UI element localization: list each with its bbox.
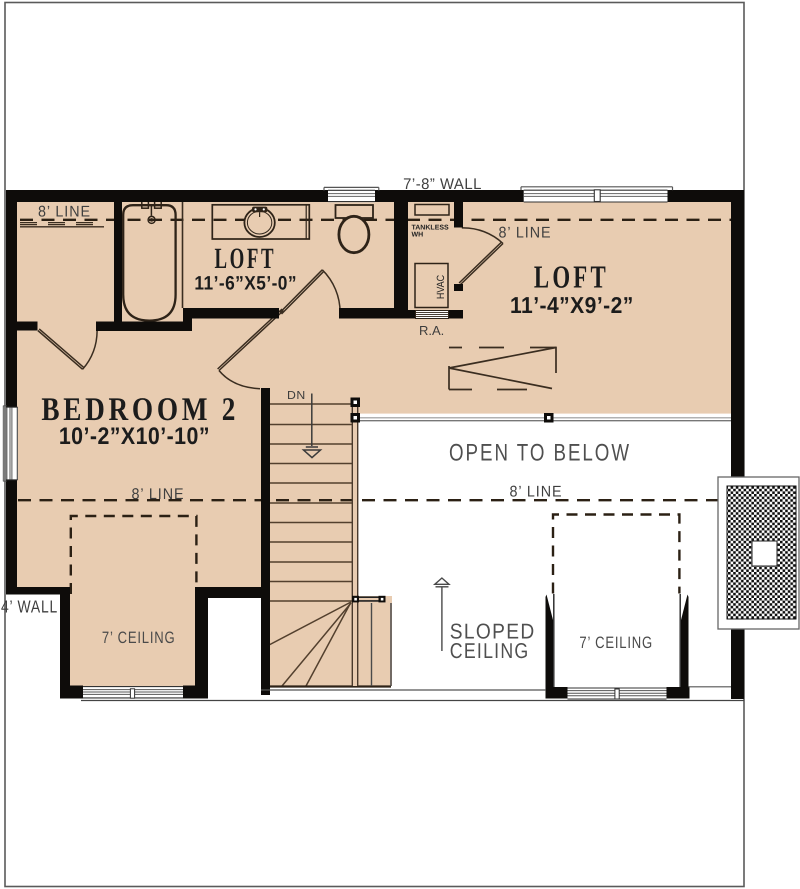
svg-text:10’-2”X10’-10”: 10’-2”X10’-10” bbox=[59, 423, 210, 450]
svg-text:11’-4”X9’-2”: 11’-4”X9’-2” bbox=[510, 292, 634, 318]
svg-text:7’-8” WALL: 7’-8” WALL bbox=[403, 176, 482, 193]
svg-text:8’ LINE: 8’ LINE bbox=[510, 484, 563, 501]
svg-text:7’ CEILING: 7’ CEILING bbox=[102, 629, 176, 647]
svg-text:7’ CEILING: 7’ CEILING bbox=[579, 634, 653, 652]
svg-text:LOFT: LOFT bbox=[534, 259, 609, 295]
svg-text:8’ LINE: 8’ LINE bbox=[499, 224, 552, 241]
svg-text:OPEN TO BELOW: OPEN TO BELOW bbox=[449, 440, 631, 467]
svg-text:TANKLESS: TANKLESS bbox=[412, 225, 450, 232]
svg-text:4’ WALL: 4’ WALL bbox=[1, 597, 58, 617]
svg-text:DN: DN bbox=[287, 389, 306, 402]
svg-text:LOFT: LOFT bbox=[215, 243, 277, 275]
svg-text:R.A.: R.A. bbox=[419, 323, 444, 338]
svg-text:8’ LINE: 8’ LINE bbox=[132, 486, 185, 503]
svg-text:8’ LINE: 8’ LINE bbox=[38, 204, 91, 221]
svg-text:WH: WH bbox=[412, 232, 424, 239]
svg-text:HVAC: HVAC bbox=[435, 275, 447, 300]
svg-text:11’-6”X5’-0”: 11’-6”X5’-0” bbox=[194, 273, 297, 295]
svg-text:CEILING: CEILING bbox=[450, 639, 530, 663]
